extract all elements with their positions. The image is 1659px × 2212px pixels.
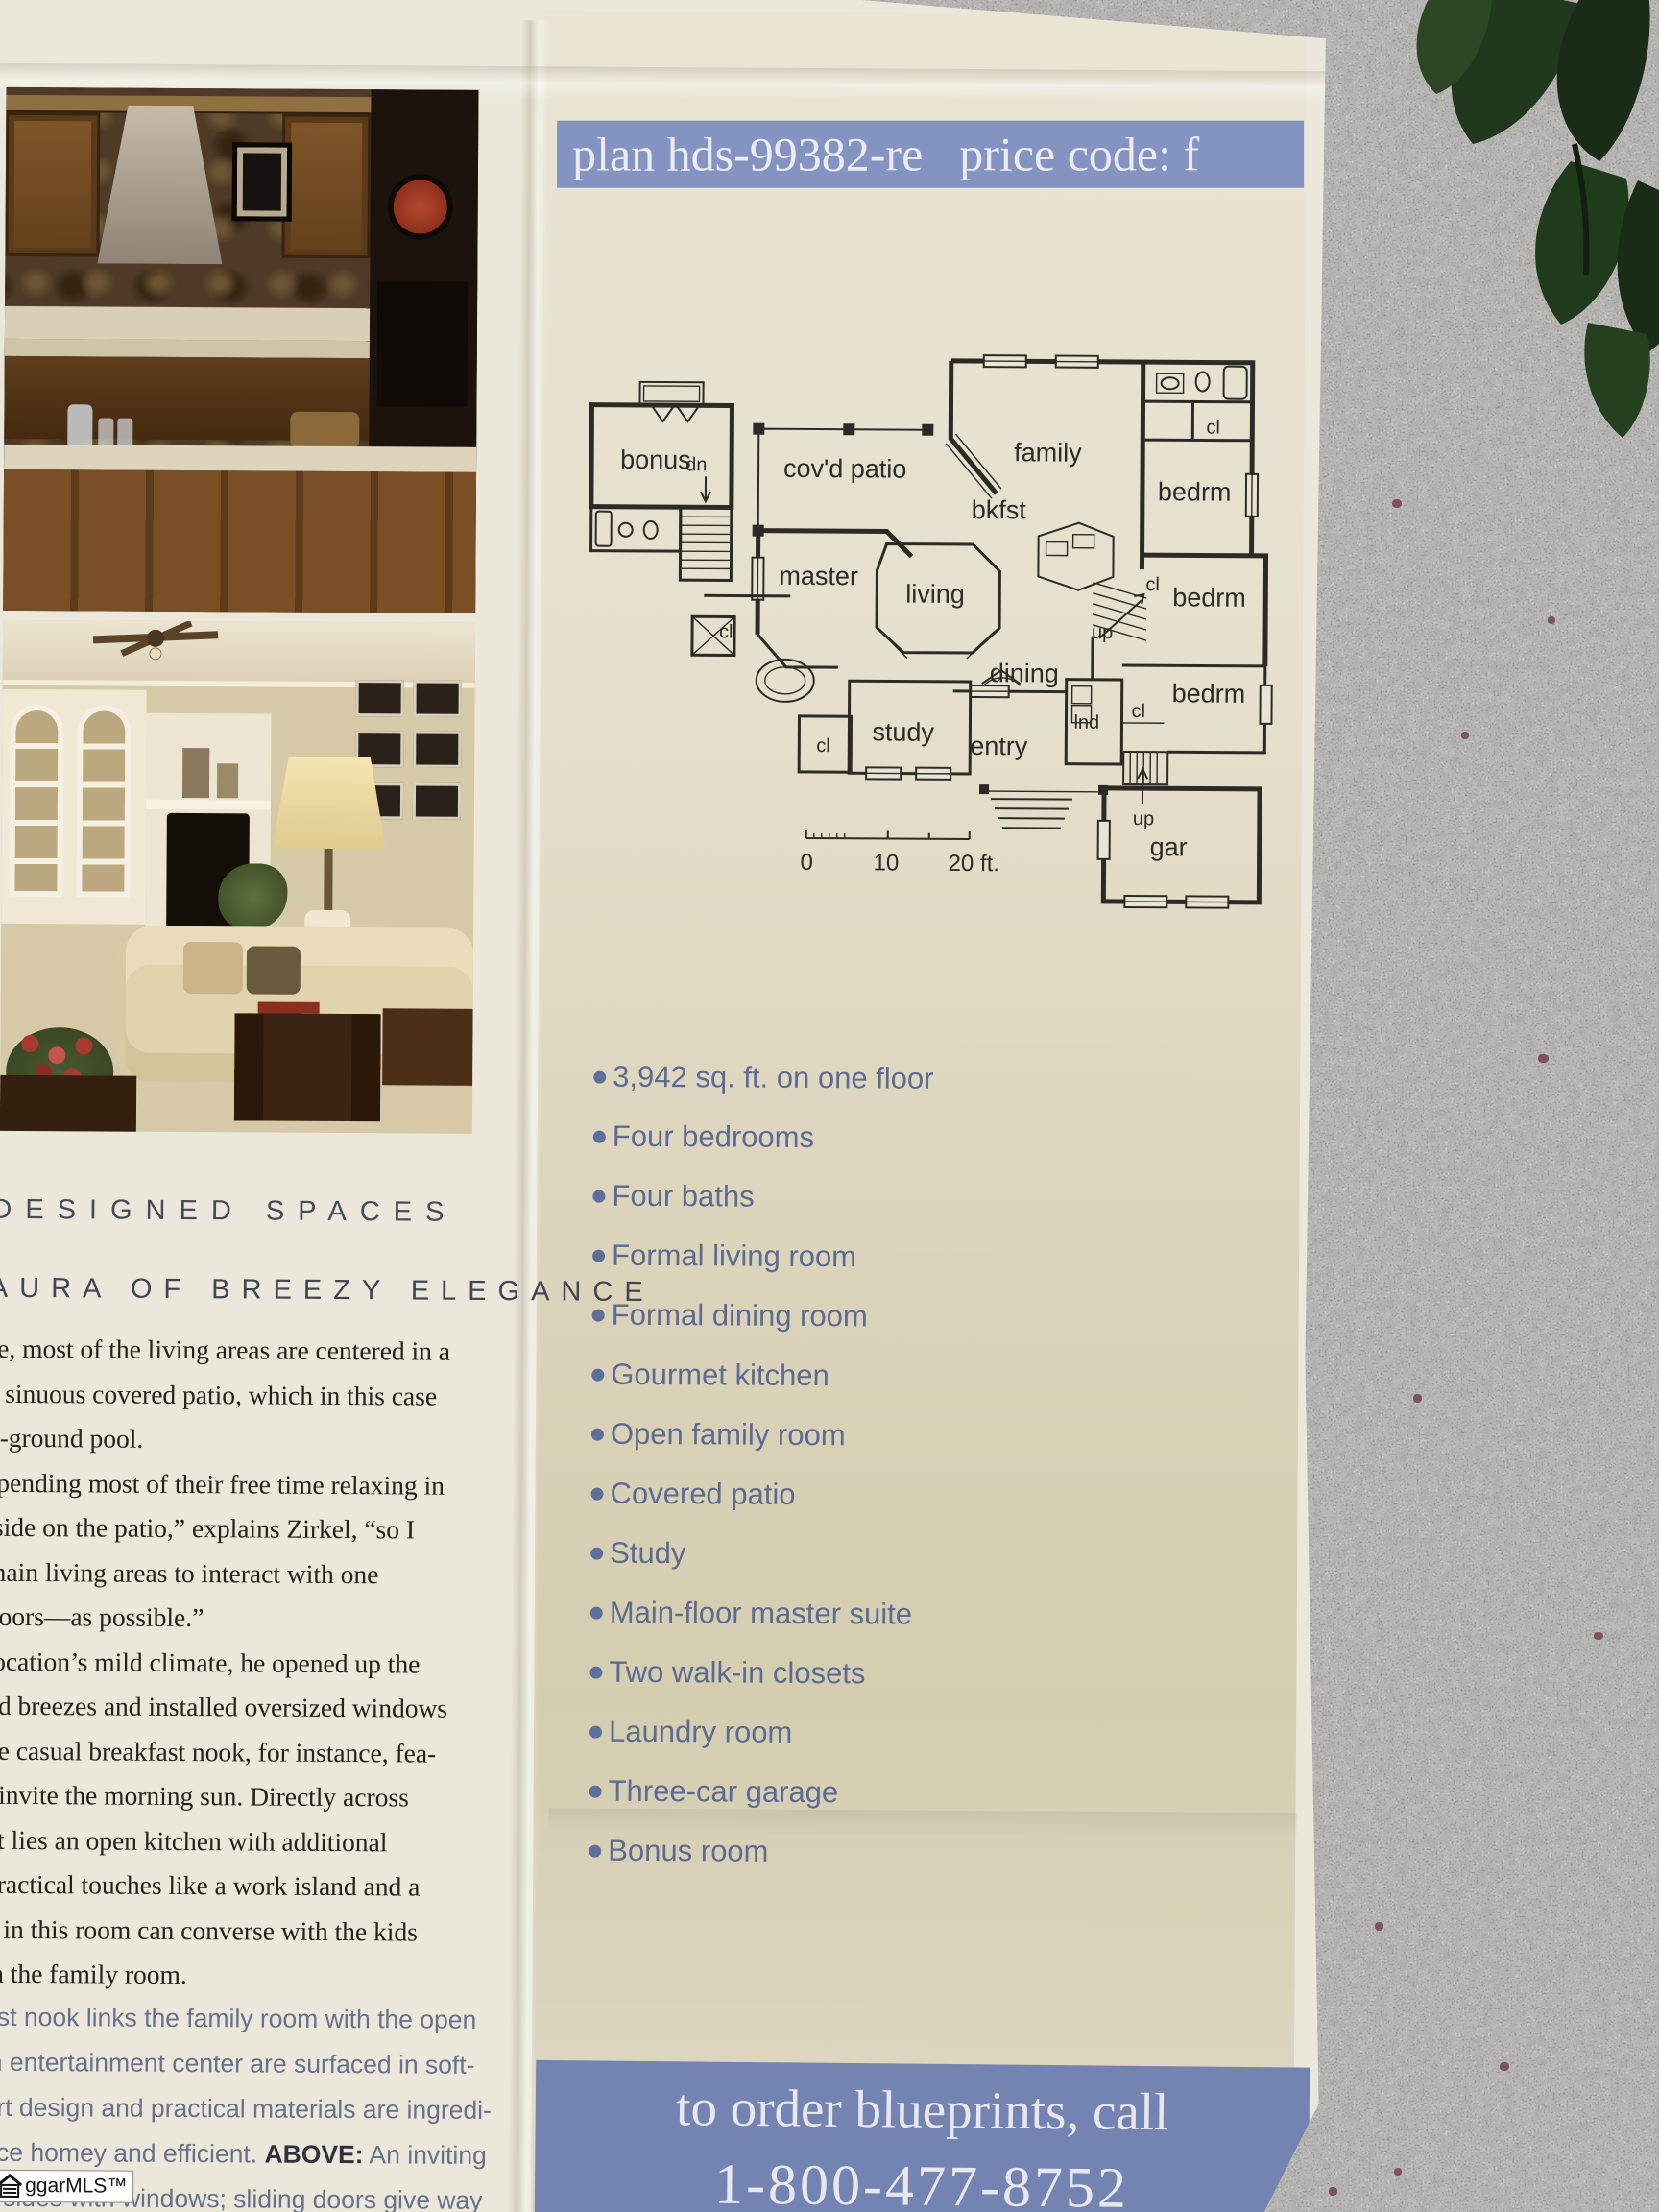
- kitchen-red-artwork: [388, 174, 453, 239]
- feature-item: Four baths: [592, 1181, 1168, 1215]
- caption-line: ast nook links the family room with the …: [0, 1995, 493, 2043]
- scale-label-20ft: 20 ft.: [948, 851, 999, 877]
- red-flower: [48, 1046, 65, 1064]
- kitchen-upper-cabinet-right: [281, 114, 371, 259]
- trunk-coffee-table: [234, 1013, 381, 1121]
- kitchen-dark-console: [376, 281, 468, 407]
- scale-label-0: 0: [800, 850, 813, 876]
- feature-item: Open family room: [591, 1419, 1167, 1454]
- lamp-stem: [324, 849, 332, 920]
- room-label-cl-mid: cl: [1145, 574, 1160, 595]
- mantel-decor: [182, 748, 209, 798]
- feature-item: Laundry room: [589, 1717, 1166, 1751]
- granite-red-speck: [1500, 2062, 1509, 2071]
- scale-label-10: 10: [873, 850, 899, 876]
- room-label-lnd: lnd: [1073, 712, 1099, 733]
- room-label-up-mid: up: [1092, 622, 1113, 643]
- ceiling-fan: [84, 620, 228, 667]
- living-room-photo: [0, 620, 475, 1134]
- body-line: he casual breakfast nook, for instance, …: [0, 1728, 448, 1775]
- granite-red-speck: [1413, 1394, 1422, 1403]
- magazine-page: DESIGNED SPACES AURA OF BREEZY ELEGANCE …: [0, 0, 1337, 2212]
- feature-list: 3,942 sq. ft. on one floor Four bedrooms…: [589, 1062, 1169, 1899]
- kitchen-glass: [117, 419, 132, 447]
- granite-red-speck: [1329, 2187, 1337, 2196]
- feature-item: Four bedrooms: [593, 1121, 1169, 1156]
- body-line: tside on the patio,” explains Zirkel, “s…: [0, 1505, 449, 1552]
- kitchen-upper-cabinet-left: [5, 112, 100, 257]
- room-label-bedrm-top: bedrm: [1158, 477, 1232, 506]
- sofa-pillow: [183, 942, 243, 994]
- mls-watermark: ggarMLS™: [0, 2170, 133, 2203]
- room-label-gar: gar: [1150, 832, 1188, 861]
- room-label-bkfst: bkfst: [972, 495, 1027, 524]
- kitchen-island-top: [4, 445, 476, 472]
- price-code: price code: f: [959, 127, 1199, 182]
- arched-window: [9, 705, 63, 897]
- room-label-dining: dining: [990, 659, 1059, 687]
- body-line: location’s mild climate, he opened up th…: [0, 1639, 448, 1686]
- body-line: n-ground pool.: [0, 1416, 450, 1463]
- granite-red-speck: [1392, 499, 1402, 508]
- body-line: t invite the morning sun. Directly acros…: [0, 1773, 447, 1820]
- living-window-wall: [1, 689, 146, 925]
- photo-of-magazine-page: DESIGNED SPACES AURA OF BREEZY ELEGANCE …: [0, 0, 1659, 2212]
- room-label-covd-patio: cov'd patio: [783, 454, 906, 484]
- granite-red-speck: [1594, 1632, 1603, 1640]
- red-book: [258, 1001, 320, 1013]
- order-call-text: to order blueprints, call: [676, 2077, 1169, 2142]
- scale-bar: [806, 830, 970, 839]
- order-blueprints-band: to order blueprints, call 1-800-477-8752: [534, 2060, 1310, 2212]
- feature-item: Gourmet kitchen: [591, 1359, 1167, 1394]
- feature-item: Formal dining room: [592, 1300, 1168, 1334]
- plan-header-band: plan hds-99382-re price code: f: [557, 121, 1304, 188]
- caption-line: in entertainment center are surfaced in …: [0, 2040, 492, 2088]
- article-headline: AURA OF BREEZY ELEGANCE: [0, 1273, 655, 1309]
- granite-red-speck: [1394, 2168, 1402, 2176]
- kitchen-island: [3, 469, 476, 613]
- leaf: [1584, 323, 1649, 438]
- feature-item: Covered patio: [590, 1479, 1166, 1513]
- mantel-shelf: [146, 800, 271, 810]
- granite-red-speck: [1461, 732, 1469, 739]
- room-label-bedrm-low: bedrm: [1172, 679, 1246, 708]
- feature-item: Main-floor master suite: [590, 1598, 1166, 1632]
- granite-red-speck: [1375, 1922, 1383, 1931]
- order-phone-number: 1-800-477-8752: [714, 2152, 1130, 2212]
- body-line: in the family room.: [0, 1952, 446, 1999]
- plant-leaves: [1348, 0, 1659, 447]
- sofa-pillow: [247, 946, 301, 994]
- caption-line: art design and practical materials are i…: [0, 2085, 492, 2133]
- feature-item: Study: [590, 1538, 1166, 1573]
- granite-red-speck: [1538, 1054, 1549, 1063]
- side-table: [382, 1008, 472, 1086]
- bonus-room: [590, 382, 732, 581]
- room-label-master: master: [779, 562, 858, 591]
- kitchen-backsplash: [5, 306, 370, 341]
- kitchen-glass: [98, 418, 113, 446]
- body-line: spending most of their free time relaxin…: [0, 1460, 449, 1507]
- feature-item: Bonus room: [589, 1836, 1165, 1870]
- plan-number: plan hds-99382-re: [572, 127, 923, 182]
- picture-frame: [413, 732, 461, 768]
- kitchen-photo: [3, 87, 478, 613]
- room-label-cl-left: cl: [719, 621, 733, 642]
- mantel-decor: [217, 763, 238, 798]
- house-logo-icon: [0, 2174, 23, 2199]
- red-flower: [75, 1037, 92, 1054]
- room-label-living: living: [905, 580, 965, 609]
- feature-item: Three-car garage: [589, 1776, 1166, 1811]
- above-label: ABOVE:: [264, 2140, 363, 2170]
- body-line: se, most of the living areas are centere…: [0, 1327, 450, 1374]
- floor-plan-drawing: bonus dn cov'd patio family cl bedrm bkf…: [567, 345, 1301, 950]
- body-line: ot lies an open kitchen with additional: [0, 1817, 447, 1864]
- feature-item: Formal living room: [592, 1240, 1168, 1275]
- body-line: doors—as possible.”: [0, 1595, 448, 1642]
- watermark-text: ggarMLS™: [25, 2175, 127, 2199]
- room-label-dn: dn: [685, 454, 707, 475]
- body-line: main living areas to interact with one: [0, 1550, 449, 1597]
- kitchen-pitcher: [67, 404, 92, 446]
- body-line: practical touches like a work island and…: [0, 1863, 447, 1910]
- lamp-shade: [273, 757, 387, 850]
- body-line: a sinuous covered patio, which in this c…: [0, 1371, 450, 1418]
- picture-frame: [414, 680, 462, 716]
- houseplant: [218, 863, 287, 930]
- caption-above-pre: nce homey and efficient.: [0, 2138, 265, 2169]
- room-label-study: study: [872, 717, 934, 746]
- kitchen-basket: [290, 412, 359, 448]
- leaf: [1557, 0, 1650, 161]
- dark-side-table: [0, 1075, 136, 1134]
- picture-frame: [413, 782, 461, 819]
- kitchen-countertop: [5, 339, 370, 358]
- picture-frame: [356, 680, 404, 716]
- room-label-cl-study: cl: [816, 735, 830, 757]
- body-line: nd breezes and installed oversized windo…: [0, 1684, 448, 1731]
- granite-red-speck: [1548, 616, 1555, 624]
- room-label-cl-top: cl: [1206, 418, 1220, 439]
- room-label-cl-low: cl: [1131, 701, 1145, 722]
- caption-above-post: An inviting: [363, 2140, 486, 2170]
- room-label-bonus: bonus: [620, 445, 691, 474]
- article-body-text: se, most of the living areas are centere…: [0, 1327, 450, 1999]
- room-label-entry: entry: [970, 732, 1028, 760]
- room-label-up-right: up: [1133, 808, 1154, 829]
- room-label-family: family: [1014, 438, 1082, 467]
- feature-item: 3,942 sq. ft. on one floor: [593, 1062, 1169, 1096]
- red-flower: [21, 1035, 38, 1052]
- body-line: g in this room can converse with the kid…: [0, 1907, 447, 1954]
- room-label-bedrm-mid: bedrm: [1172, 583, 1246, 612]
- arched-window: [76, 705, 131, 897]
- living-ceiling: [3, 620, 475, 685]
- section-kicker: DESIGNED SPACES: [0, 1194, 457, 1229]
- kitchen-wall-art: [232, 142, 292, 221]
- master-wing-walls: [692, 530, 912, 702]
- feature-item: Two walk-in closets: [589, 1657, 1166, 1692]
